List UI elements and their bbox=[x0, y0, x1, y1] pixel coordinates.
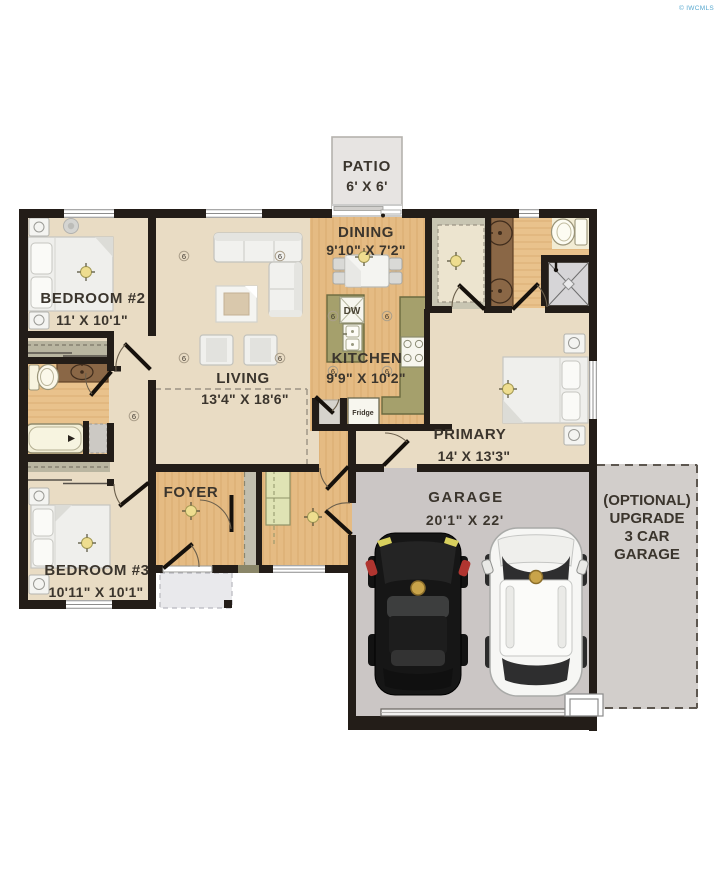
svg-text:KITCHEN: KITCHEN bbox=[332, 350, 403, 367]
svg-text:6: 6 bbox=[182, 252, 186, 261]
svg-text:10'11" X 10'1": 10'11" X 10'1" bbox=[49, 584, 144, 600]
svg-text:11' X 10'1": 11' X 10'1" bbox=[56, 312, 128, 328]
svg-text:PATIO: PATIO bbox=[343, 158, 392, 175]
svg-text:14' X 13'3": 14' X 13'3" bbox=[438, 448, 511, 464]
svg-text:6: 6 bbox=[278, 252, 282, 261]
svg-text:6' X 6': 6' X 6' bbox=[346, 178, 387, 194]
svg-text:13'4" X 18'6": 13'4" X 18'6" bbox=[201, 391, 289, 407]
svg-text:6: 6 bbox=[182, 354, 186, 363]
svg-text:3 CAR: 3 CAR bbox=[624, 528, 669, 545]
svg-text:DINING: DINING bbox=[338, 224, 394, 241]
svg-text:LIVING: LIVING bbox=[216, 370, 270, 387]
svg-text:FOYER: FOYER bbox=[164, 484, 219, 501]
svg-text:BEDROOM #2: BEDROOM #2 bbox=[40, 290, 145, 307]
svg-text:9'10" X 7'2": 9'10" X 7'2" bbox=[326, 242, 406, 258]
svg-text:9'9" X 10'2": 9'9" X 10'2" bbox=[326, 370, 406, 386]
svg-text:(OPTIONAL): (OPTIONAL) bbox=[603, 492, 691, 509]
svg-text:BEDROOM #3: BEDROOM #3 bbox=[44, 562, 149, 579]
svg-text:GARAGE: GARAGE bbox=[614, 546, 680, 563]
svg-text:PRIMARY: PRIMARY bbox=[434, 426, 507, 443]
svg-text:6: 6 bbox=[331, 312, 335, 321]
svg-text:DW: DW bbox=[344, 306, 361, 317]
svg-text:6: 6 bbox=[385, 312, 389, 321]
svg-text:6: 6 bbox=[278, 354, 282, 363]
svg-text:GARAGE: GARAGE bbox=[428, 489, 503, 506]
svg-text:© IWCMLS: © IWCMLS bbox=[679, 4, 714, 12]
svg-text:Fridge: Fridge bbox=[352, 410, 373, 417]
svg-text:UPGRADE: UPGRADE bbox=[609, 510, 684, 527]
svg-text:6: 6 bbox=[132, 412, 136, 421]
svg-text:20'1" X 22': 20'1" X 22' bbox=[426, 512, 504, 528]
